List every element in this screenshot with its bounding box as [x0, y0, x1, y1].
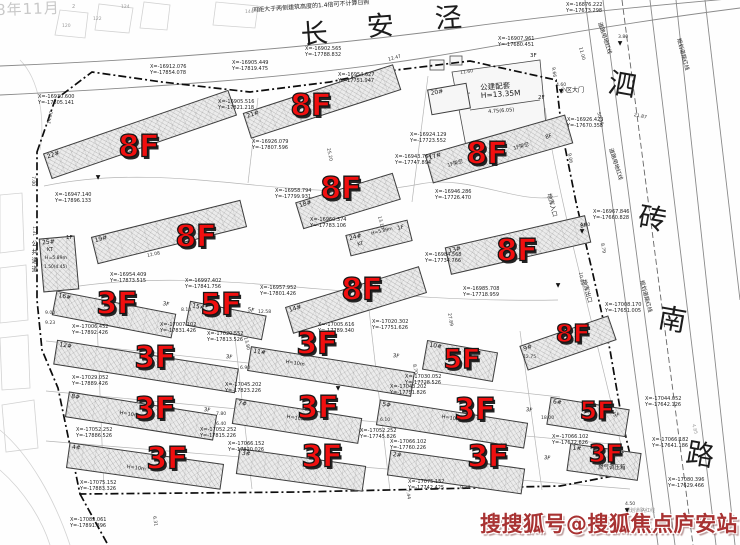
coordinate-label: X=-17083.061Y=-17891.896 — [70, 517, 106, 529]
coordinate-label: X=-17029.052Y=-17889.426 — [72, 375, 108, 387]
coord-y: Y=-17629.466 — [668, 483, 704, 489]
building-number: 6# — [552, 399, 562, 406]
plan-text-label: 安 — [366, 12, 395, 42]
coord-y: Y=-17726.470 — [435, 195, 471, 201]
dimension-label: 6.31 — [150, 516, 156, 527]
plan-text-label: 3F — [525, 408, 532, 415]
coordinate-label: X=-16905.449Y=-17819.475 — [232, 60, 268, 72]
plan-text-label: 2F — [538, 96, 545, 102]
coord-y: Y=-17789.340 — [318, 328, 354, 334]
coord-y: Y=-17896.133 — [55, 198, 91, 204]
coord-y: Y=-17783.106 — [310, 223, 346, 229]
dimension-label: 8.79 — [598, 243, 604, 254]
coord-y: Y=-17815.226 — [200, 433, 236, 439]
building-number: 16# — [58, 293, 72, 301]
plan-text-label: 地库入口 — [545, 193, 557, 218]
coord-y: Y=-17854.078 — [150, 70, 186, 76]
coord-y: Y=-17892.426 — [72, 330, 108, 336]
coordinate-label: X=-16967.846Y=-17660.828 — [593, 209, 629, 221]
building-number: 22# — [46, 150, 60, 160]
floor-label: 8F — [556, 321, 590, 346]
building-19: 19# — [91, 200, 247, 264]
plan-text-label: 间距大于两侧建筑高度的1.4倍可不计算日照 — [252, 0, 370, 14]
building-number: 10# — [429, 342, 443, 350]
coordinate-label: X=-17020.552Y=-17813.526 — [207, 331, 243, 343]
floor-label: 3F — [467, 442, 508, 472]
plan-text-label: 124 — [121, 6, 130, 11]
plan-text-label: 5F — [247, 308, 255, 315]
elevation-marker-icon: ▼ — [96, 175, 101, 181]
plan-text-label: 公共通道 — [30, 240, 37, 274]
residential-site-plan: 22#8F21#8F17#8F18#8F19#8F13#8F14#8F9#8F1… — [0, 0, 740, 545]
coordinate-label: X=-16954.409Y=-17873.515 — [110, 272, 146, 284]
plan-text-label: 砖 — [636, 202, 669, 236]
coord-y: Y=-17799.931 — [275, 194, 311, 200]
elevation-marker-icon: ▼ — [618, 41, 623, 47]
building-number: 8# — [71, 394, 81, 401]
coord-y: Y=-17718.959 — [463, 292, 499, 298]
coordinate-label: X=-16984.568Y=-17734.766 — [425, 252, 461, 264]
coord-y: Y=-17642.126 — [645, 402, 681, 408]
coord-y: Y=-17747.894 — [395, 160, 431, 166]
coord-y: Y=-17751.947 — [338, 78, 374, 84]
dimension-label: 27.89 — [445, 313, 452, 327]
coord-y: Y=-17873.515 — [110, 278, 146, 284]
floor-label: 3F — [134, 343, 175, 373]
dimension-label: 7.44 — [403, 489, 409, 500]
plan-text-label: KT — [47, 248, 53, 253]
coordinate-label: X=-17030.052Y=-17728.526 — [405, 374, 441, 386]
coord-y: Y=-17883.326 — [80, 486, 116, 492]
floor-label: 3F — [146, 444, 187, 474]
coord-y: Y=-17820.026 — [228, 447, 264, 453]
coordinate-label: X=-16985.708Y=-17718.959 — [463, 286, 499, 298]
plan-layer: 22#8F21#8F17#8F18#8F19#8F13#8F14#8F9#8F1… — [0, 0, 740, 545]
dimension-label: 12.58 — [258, 311, 271, 316]
plan-text-label: 122 — [93, 18, 102, 23]
building-number: 19# — [94, 235, 108, 244]
coordinate-label: X=-17080.396Y=-17629.466 — [668, 477, 704, 489]
building-number: 2# — [392, 452, 402, 459]
dimension-label: 7.80 — [216, 413, 226, 418]
dimension-label: 18.00 — [541, 417, 554, 422]
coordinate-label: X=-16997.402Y=-17841.756 — [185, 278, 221, 290]
dimension-label: 12.08 — [147, 252, 161, 259]
dimension-label: 14.00 — [48, 111, 55, 125]
coordinate-label: X=-16943.764Y=-17747.894 — [395, 154, 431, 166]
dimension-label: 10.85 — [576, 272, 583, 286]
plan-text-label: 规划道路红线 — [674, 38, 688, 71]
dimension-label: 9.66 — [549, 67, 555, 78]
coordinate-label: X=-16876.222Y=-17673.298 — [566, 2, 602, 14]
coord-y: Y=-17823.226 — [225, 388, 261, 394]
floor-label: 8F — [320, 174, 361, 204]
coord-y: Y=-17742.425 — [408, 485, 444, 491]
coord-y: Y=-17819.475 — [232, 66, 268, 72]
coord-y: Y=-17751.626 — [372, 325, 408, 331]
plan-text-label: 4.75(6.05) — [488, 108, 514, 115]
floor-label: 8F — [341, 275, 382, 305]
dimension-label: 25.20 — [325, 148, 332, 162]
floor-label: 5F — [580, 398, 614, 423]
plan-text-label: 2 — [72, 5, 75, 10]
coordinate-label: X=-16957.952Y=-17801.426 — [260, 285, 296, 297]
coord-y: Y=-17891.896 — [70, 523, 106, 529]
coord-y: Y=-17672.626 — [552, 440, 588, 446]
coord-y: Y=-17841.756 — [185, 284, 221, 290]
coordinate-label: X=-16930.600Y=-17805.141 — [38, 94, 74, 106]
coordinate-label: X=-17045.202Y=-17823.226 — [225, 382, 261, 394]
elevation-marker-icon: ▼ — [580, 229, 585, 235]
plan-text-label: 长 — [300, 20, 329, 50]
plan-text-label: 泾 — [434, 4, 463, 34]
dimension-label: 12.47 — [388, 56, 402, 64]
coordinate-label: X=-17075.152Y=-17742.425 — [408, 479, 444, 491]
plan-text-label: 1F — [66, 236, 73, 242]
coord-y: Y=-17641.186 — [652, 443, 688, 449]
plan-text-label: 3F — [225, 355, 232, 362]
building-25: 25# — [39, 236, 80, 293]
floor-label: 3F — [134, 394, 175, 424]
floor-label: 5F — [200, 290, 241, 320]
coord-y: Y=-17821.218 — [218, 105, 254, 111]
building-number: 14# — [288, 304, 302, 313]
coordinate-label: X=-16907.961Y=-17680.451 — [498, 36, 534, 48]
dimension-label: 4.85 — [690, 424, 697, 435]
coordinate-label: X=-17020.302Y=-17751.626 — [372, 319, 408, 331]
plan-text-label: 120 — [62, 25, 71, 30]
floor-label: 3F — [301, 442, 342, 472]
plan-text-label: 3F — [617, 451, 624, 458]
dimension-label: 12.75 — [523, 356, 536, 361]
coordinate-label: X=-16926.079Y=-17807.596 — [252, 139, 288, 151]
floor-label: 3F — [96, 289, 137, 319]
building-number: 11# — [253, 348, 266, 356]
dimension-label: 6.40 — [216, 423, 226, 428]
floor-label: 8F — [175, 222, 216, 252]
elevation-marker-icon: ▼ — [559, 89, 564, 95]
plan-text-label: 3F — [162, 302, 170, 309]
coordinate-label: X=-16924.129Y=-17723.552 — [410, 132, 446, 144]
building-number: 5# — [382, 402, 392, 409]
coord-y: Y=-17660.828 — [593, 215, 629, 221]
coordinate-label: X=-17066.102Y=-17760.226 — [390, 439, 426, 451]
coordinate-label: X=-17066.102Y=-17672.626 — [552, 434, 588, 446]
coordinate-label: X=-17008.170Y=-17651.005 — [605, 302, 641, 314]
building-number: 12# — [59, 342, 72, 350]
dimension-label: 7.00 — [29, 176, 34, 186]
coordinate-label: X=-17066.182Y=-17641.186 — [652, 437, 688, 449]
building-number: 20# — [430, 89, 444, 97]
plan-text-label: 5F — [612, 413, 619, 420]
plan-text-label: 3F — [392, 354, 399, 361]
dimension-label: 9.37 — [460, 487, 470, 492]
coord-y: Y=-17651.005 — [605, 308, 641, 314]
coord-y: Y=-17813.526 — [207, 337, 243, 343]
plan-text-label: 道路用地红线 — [607, 148, 623, 181]
plan-text-label: 144 — [245, 11, 254, 16]
coordinate-label: X=-16954.627Y=-17751.947 — [338, 72, 374, 84]
coordinate-label: X=-16947.140Y=-17896.133 — [55, 192, 91, 204]
elevation-marker-icon: ▼ — [336, 386, 341, 392]
coord-y: Y=-17673.298 — [566, 8, 602, 14]
coord-y: Y=-17760.226 — [390, 445, 426, 451]
dimension-label: 8.70 — [410, 364, 416, 375]
plan-text-label: 3F — [543, 456, 550, 463]
building-number: 21# — [246, 110, 260, 120]
dimension-label: 11.60 — [460, 70, 474, 76]
coordinate-label: X=-17044.052Y=-17642.126 — [645, 396, 681, 408]
coordinate-label: X=-17007.102Y=-17831.426 — [160, 322, 196, 334]
dimension-label: 21.87 — [633, 114, 647, 121]
plan-text-label: 公建配套 H=13.35M — [480, 81, 521, 99]
building-number: 9# — [523, 344, 533, 353]
floor-label: 8F — [290, 91, 331, 121]
plan-text-label: 燃气调压箱 — [598, 466, 626, 472]
coordinate-label: X=-17006.452Y=-17892.426 — [72, 324, 108, 336]
coordinate-label: X=-17052.252Y=-17815.226 — [200, 427, 236, 439]
coord-y: Y=-17723.552 — [410, 138, 446, 144]
plan-text-label: 3F — [203, 408, 210, 415]
floor-label: 5F — [443, 346, 480, 373]
plan-text-label: 泗 — [606, 68, 639, 102]
coordinate-label: X=-16905.516Y=-17821.218 — [218, 99, 254, 111]
coord-y: Y=-17886.526 — [76, 433, 112, 439]
floor-label: 3F — [454, 395, 495, 425]
building-number: 25# — [42, 239, 55, 246]
plan-text-label: 1.50(4.45) — [44, 266, 67, 271]
building-number: 1# — [572, 446, 582, 453]
dimension-label: 1.31 — [30, 226, 35, 236]
coordinate-label: X=-16946.286Y=-17726.470 — [435, 189, 471, 201]
coordinate-label: X=-17075.152Y=-17883.326 — [80, 480, 116, 492]
coord-y: Y=-17889.426 — [72, 381, 108, 387]
coordinate-label: X=-16958.794Y=-17799.931 — [275, 188, 311, 200]
dimension-label: 11.00 — [577, 47, 585, 61]
plan-text-label: 南 — [656, 303, 689, 337]
dimension-label: 9.06 — [565, 153, 571, 164]
coord-y: Y=-17751.826 — [390, 390, 426, 396]
dimension-label: 8.10 — [181, 309, 191, 314]
building-number: 18# — [299, 200, 313, 209]
coordinate-label: X=-17066.152Y=-17820.026 — [228, 441, 264, 453]
coordinate-label: X=-16912.076Y=-17854.078 — [150, 64, 186, 76]
coord-y: Y=-17807.596 — [252, 145, 288, 151]
dimension-label: 13.80 — [242, 337, 250, 351]
coord-y: Y=-17801.426 — [260, 291, 296, 297]
plan-text-label: H=5.89m — [45, 257, 67, 262]
building-20: 20# — [427, 83, 471, 116]
building-number: 7# — [238, 401, 248, 408]
coord-y: Y=-17788.832 — [305, 52, 341, 58]
coord-y: Y=-17728.526 — [405, 380, 441, 386]
coordinate-label: X=-17052.252Y=-17886.526 — [76, 427, 112, 439]
coordinate-label: X=-17005.616Y=-17789.340 — [318, 322, 354, 334]
floor-label: 8F — [466, 139, 507, 169]
dimension-label: 9.00 — [45, 312, 55, 317]
coord-y: Y=-17805.141 — [38, 100, 74, 106]
floor-label: 8F — [496, 236, 537, 266]
elevation-marker-icon: ▼ — [556, 283, 561, 289]
coordinate-label: X=-16960.374Y=-17783.106 — [310, 217, 346, 229]
dimension-label: 6.10 — [380, 419, 390, 424]
building-number: 4# — [71, 445, 81, 452]
plan-text-label: 路 — [684, 438, 717, 472]
date-watermark-fragment: 8年11月 — [0, 0, 60, 20]
coord-y: Y=-17680.451 — [498, 42, 534, 48]
plan-text-label: 道路用地红线 — [596, 22, 612, 55]
plan-text-label: 3F — [530, 54, 537, 60]
floor-label: 8F — [118, 132, 159, 162]
dimension-label: 6.90 — [240, 367, 250, 372]
coord-y: Y=-17831.426 — [160, 328, 196, 334]
coord-y: Y=-17734.766 — [425, 258, 461, 264]
sohu-focus-watermark: 搜搜狐号@搜狐焦点庐安站 — [480, 508, 738, 538]
dimension-label: 9.23 — [45, 322, 55, 327]
